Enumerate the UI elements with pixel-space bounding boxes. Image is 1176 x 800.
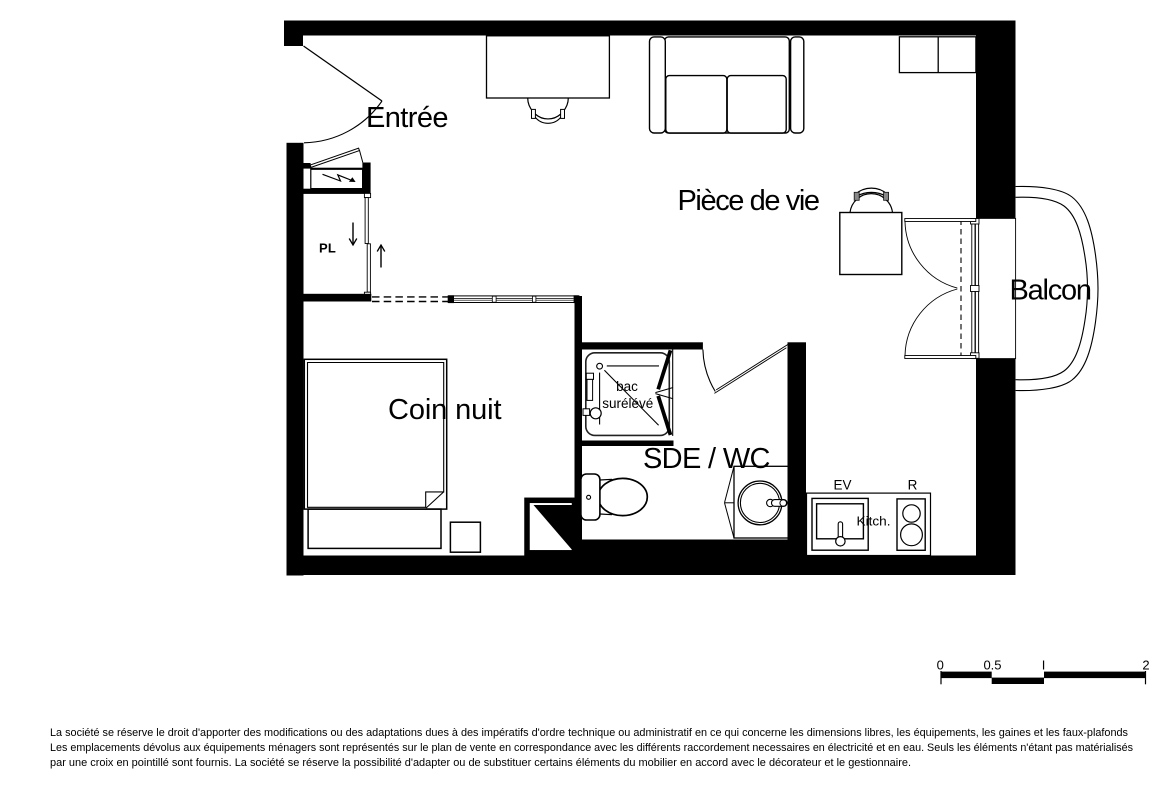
svg-text:PL: PL (319, 241, 336, 256)
svg-text:I: I (1042, 658, 1046, 673)
svg-text:La société se réserve le droit: La société se réserve le droit d'apporte… (50, 727, 1128, 739)
svg-text:R: R (908, 478, 918, 493)
svg-text:Entrée: Entrée (366, 102, 448, 134)
svg-text:EV: EV (833, 478, 851, 493)
svg-text:Pièce de vie: Pièce de vie (678, 185, 820, 217)
svg-text:0: 0 (937, 658, 944, 673)
svg-text:Kitch.: Kitch. (857, 514, 891, 529)
svg-text:0.5: 0.5 (983, 658, 1001, 673)
svg-text:Balcon: Balcon (1010, 275, 1092, 307)
svg-text:Les emplacements dévolus aux é: Les emplacements dévolus aux équipements… (50, 742, 1133, 754)
svg-text:par une croix en pointillé son: par une croix en pointillé sont fournis.… (50, 757, 911, 769)
svg-text:2: 2 (1142, 658, 1149, 673)
svg-text:surélévé: surélévé (602, 396, 653, 411)
svg-text:SDE / WC: SDE / WC (643, 443, 770, 475)
svg-text:bac: bac (616, 379, 638, 394)
svg-text:Coin nuit: Coin nuit (388, 394, 501, 426)
